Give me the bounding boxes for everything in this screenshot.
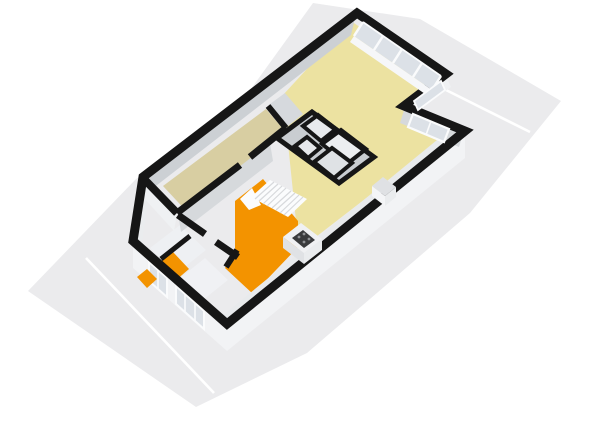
- floorplan-viewport[interactable]: [0, 0, 600, 424]
- floorplan-3d-render: [0, 0, 600, 424]
